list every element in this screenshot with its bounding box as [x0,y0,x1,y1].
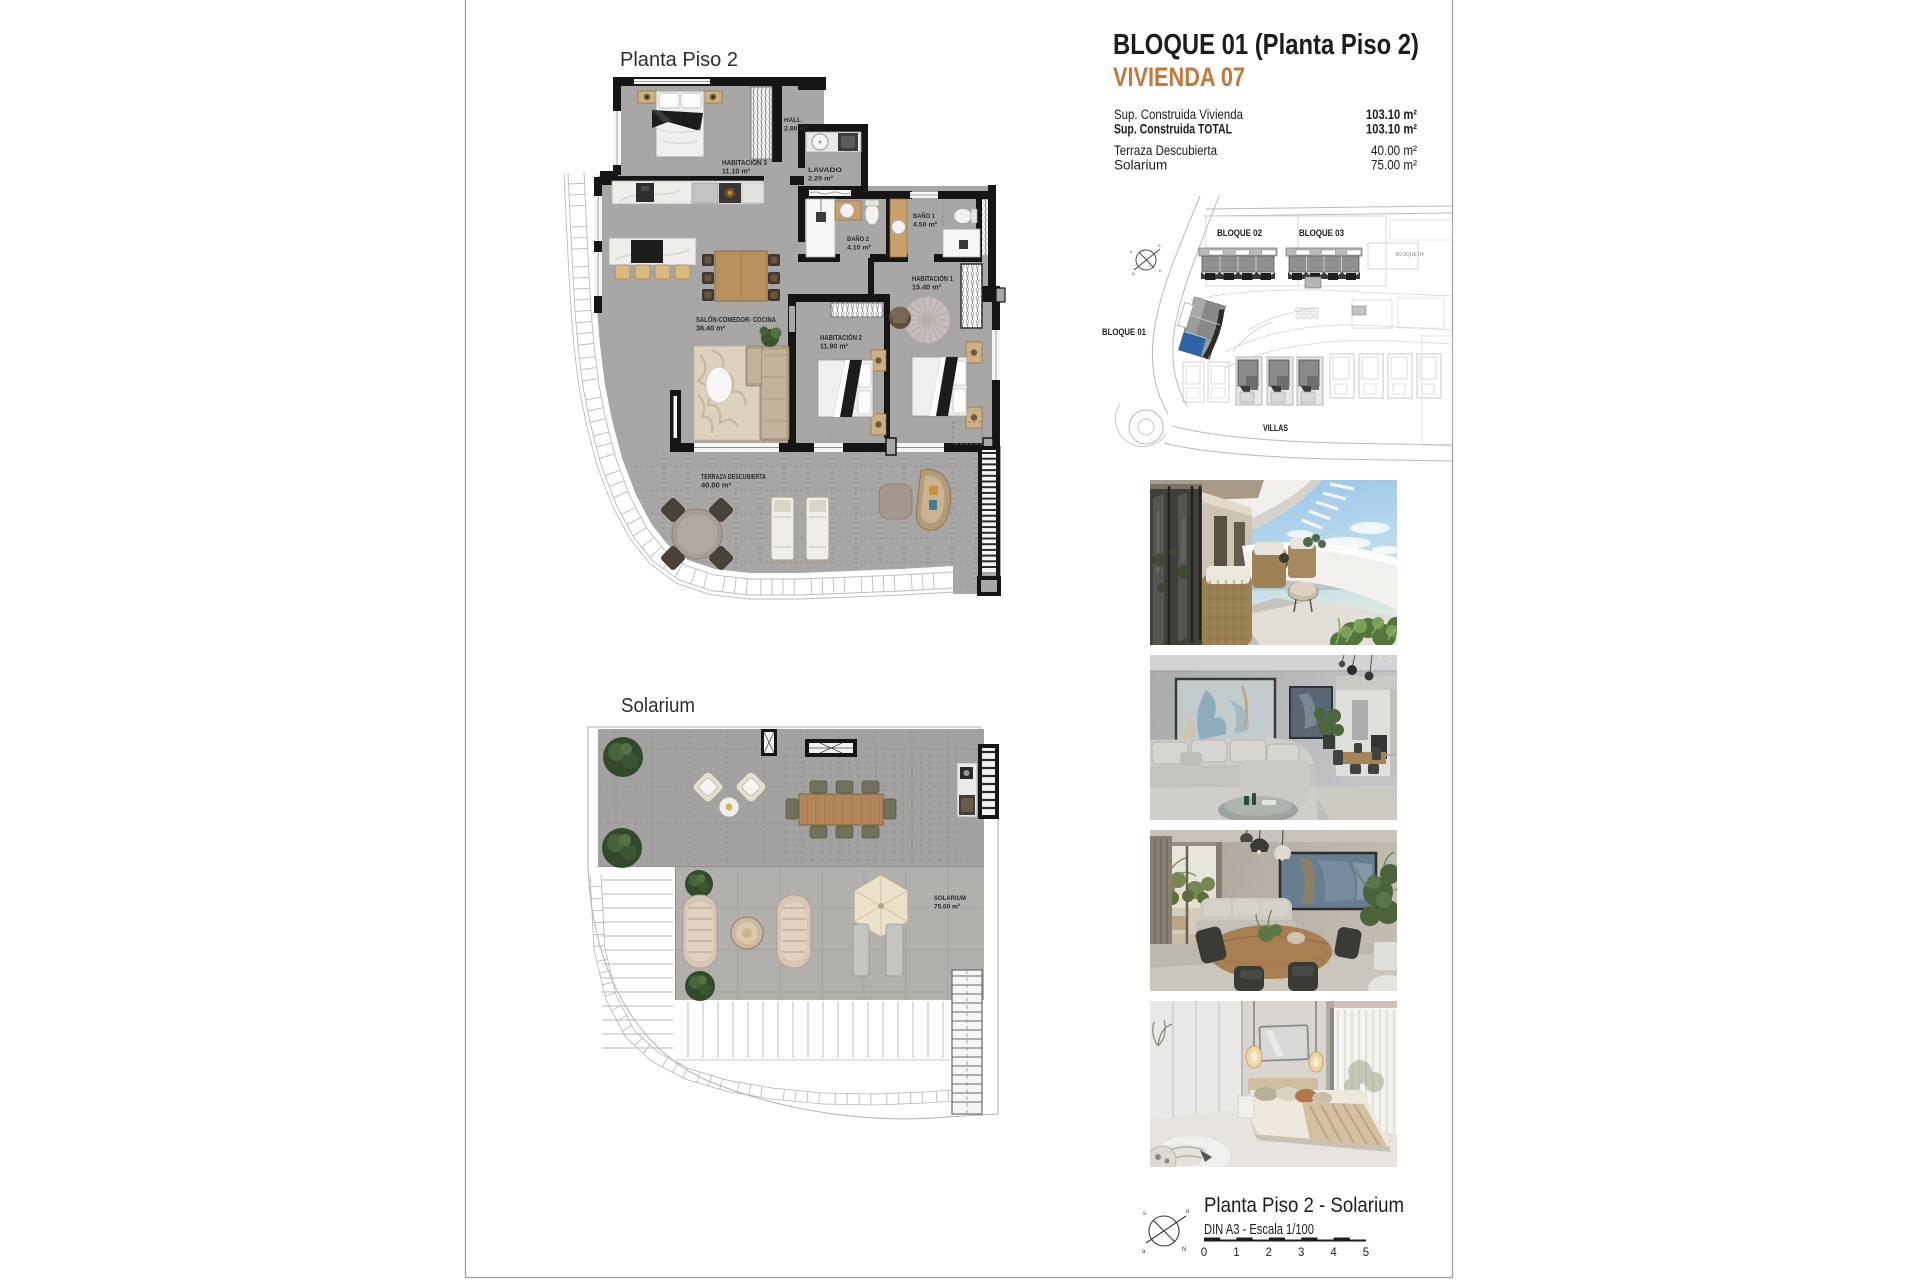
svg-text:75.00 m²: 75.00 m² [1371,158,1417,173]
svg-text:Sup. Construida Vivienda: Sup. Construida Vivienda [1114,107,1243,122]
svg-text:LAVADO: LAVADO [808,167,842,174]
svg-text:1: 1 [1233,1247,1239,1259]
svg-text:2.80 m²: 2.80 m² [784,126,809,133]
svg-text:BLOQUE 02: BLOQUE 02 [1217,228,1262,238]
svg-text:103.10 m²: 103.10 m² [1366,107,1417,122]
svg-text:BAÑO 1: BAÑO 1 [913,211,935,220]
svg-text:40.00 m²: 40.00 m² [1371,143,1417,158]
svg-text:0: 0 [1201,1247,1207,1259]
svg-text:s: s [1143,1211,1146,1217]
svg-text:4.50 m²: 4.50 m² [913,222,938,229]
svg-text:SOLARIUM: SOLARIUM [934,895,966,902]
svg-text:11.90 m²: 11.90 m² [820,342,849,351]
svg-text:5: 5 [1363,1247,1369,1259]
svg-text:36.40 m²: 36.40 m² [696,324,726,333]
svg-text:75.00 m²: 75.00 m² [934,904,961,911]
svg-text:BLOQUE 04: BLOQUE 04 [1396,252,1424,258]
svg-text:Planta Piso 2: Planta Piso 2 [620,49,738,71]
svg-text:Sup. Construida TOTAL: Sup. Construida TOTAL [1114,122,1232,137]
svg-text:2.20 m²: 2.20 m² [808,176,834,183]
svg-text:3: 3 [1298,1247,1304,1259]
svg-text:Planta Piso 2 - Solarium: Planta Piso 2 - Solarium [1204,1193,1404,1217]
svg-text:Solarium: Solarium [621,695,695,717]
svg-text:N: N [1182,1247,1186,1253]
svg-text:HALL: HALL [784,117,801,124]
svg-text:DIN A3 - Escala 1/100: DIN A3 - Escala 1/100 [1204,1222,1314,1238]
svg-text:Solarium: Solarium [1114,158,1167,173]
svg-text:11.10 m²: 11.10 m² [722,167,751,176]
svg-text:BLOQUE 01: BLOQUE 01 [1102,327,1146,337]
svg-text:4: 4 [1330,1247,1337,1259]
svg-text:103.10 m²: 103.10 m² [1366,122,1417,137]
svg-text:4.10 m²: 4.10 m² [847,245,872,252]
svg-text:VIVIENDA 07: VIVIENDA 07 [1113,62,1245,92]
svg-text:BLOQUE 03: BLOQUE 03 [1299,228,1344,238]
svg-text:VILLAS: VILLAS [1263,423,1288,434]
svg-text:BLOQUE 01 (Planta Piso 2): BLOQUE 01 (Planta Piso 2) [1113,29,1419,61]
svg-text:BAÑO 2: BAÑO 2 [847,234,869,243]
svg-text:2: 2 [1266,1247,1272,1259]
svg-text:15.40 m²: 15.40 m² [912,283,942,292]
svg-text:40.00 m²: 40.00 m² [701,481,732,490]
svg-text:Terraza Descubierta: Terraza Descubierta [1114,143,1217,158]
